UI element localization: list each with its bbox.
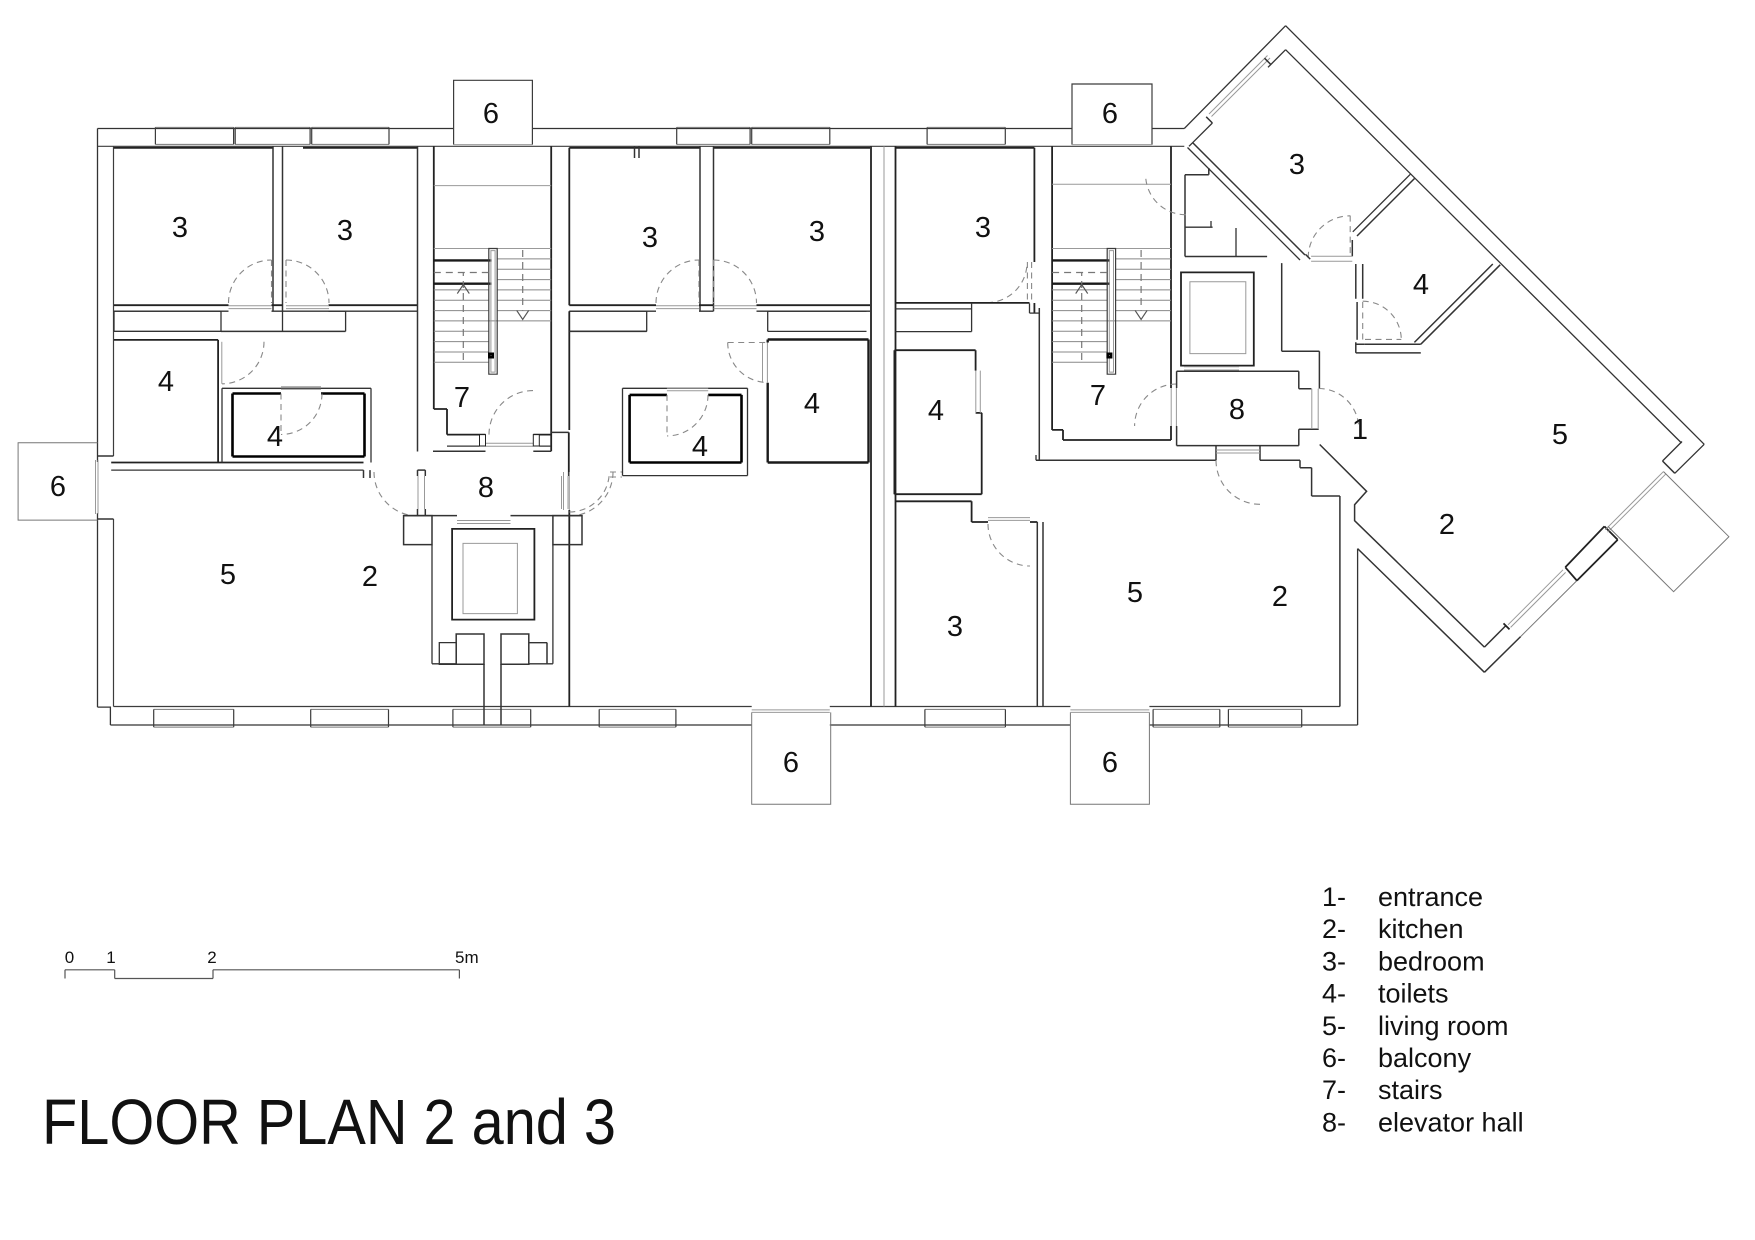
svg-text:2: 2 [207, 948, 216, 967]
svg-text:stairs: stairs [1378, 1075, 1443, 1105]
svg-text:6: 6 [483, 98, 499, 130]
svg-text:4-: 4- [1322, 979, 1346, 1009]
svg-text:3: 3 [975, 212, 991, 244]
svg-text:2: 2 [362, 561, 378, 593]
svg-text:3: 3 [172, 212, 188, 244]
svg-text:4: 4 [158, 366, 174, 398]
svg-text:living room: living room [1378, 1011, 1509, 1041]
svg-text:entrance: entrance [1378, 882, 1483, 912]
svg-text:6: 6 [1102, 98, 1118, 130]
svg-text:3: 3 [947, 611, 963, 643]
svg-text:8: 8 [1229, 394, 1245, 426]
svg-text:bedroom: bedroom [1378, 946, 1485, 976]
svg-text:3: 3 [642, 222, 658, 254]
svg-text:4: 4 [1413, 269, 1429, 301]
svg-text:FLOOR PLAN 2 and 3: FLOOR PLAN 2 and 3 [42, 1086, 616, 1158]
svg-text:4: 4 [928, 395, 944, 427]
svg-text:6: 6 [1102, 747, 1118, 779]
svg-text:elevator hall: elevator hall [1378, 1107, 1524, 1137]
svg-text:0: 0 [65, 948, 74, 967]
svg-text:kitchen: kitchen [1378, 914, 1464, 944]
svg-text:2-: 2- [1322, 914, 1346, 944]
svg-text:balcony: balcony [1378, 1043, 1472, 1073]
svg-text:6: 6 [783, 747, 799, 779]
svg-text:8: 8 [478, 472, 494, 504]
svg-text:1: 1 [106, 948, 115, 967]
svg-text:5: 5 [1552, 419, 1568, 451]
svg-text:2: 2 [1439, 509, 1455, 541]
svg-text:8-: 8- [1322, 1107, 1346, 1137]
svg-text:3: 3 [1289, 149, 1305, 181]
svg-text:1-: 1- [1322, 882, 1346, 912]
svg-text:6: 6 [50, 471, 66, 503]
svg-text:4: 4 [692, 431, 708, 463]
svg-text:7-: 7- [1322, 1075, 1346, 1105]
svg-text:7: 7 [1090, 380, 1106, 412]
svg-text:3: 3 [809, 216, 825, 248]
svg-text:2: 2 [1272, 581, 1288, 613]
svg-text:3: 3 [337, 215, 353, 247]
svg-text:5m: 5m [455, 948, 479, 967]
svg-text:5: 5 [220, 559, 236, 591]
svg-text:5: 5 [1127, 577, 1143, 609]
svg-text:6-: 6- [1322, 1043, 1346, 1073]
svg-text:4: 4 [267, 421, 283, 453]
svg-text:4: 4 [804, 388, 820, 420]
svg-text:5-: 5- [1322, 1011, 1346, 1041]
svg-text:toilets: toilets [1378, 979, 1449, 1009]
svg-text:1: 1 [1352, 414, 1368, 446]
svg-text:7: 7 [454, 382, 470, 414]
svg-text:3-: 3- [1322, 946, 1346, 976]
